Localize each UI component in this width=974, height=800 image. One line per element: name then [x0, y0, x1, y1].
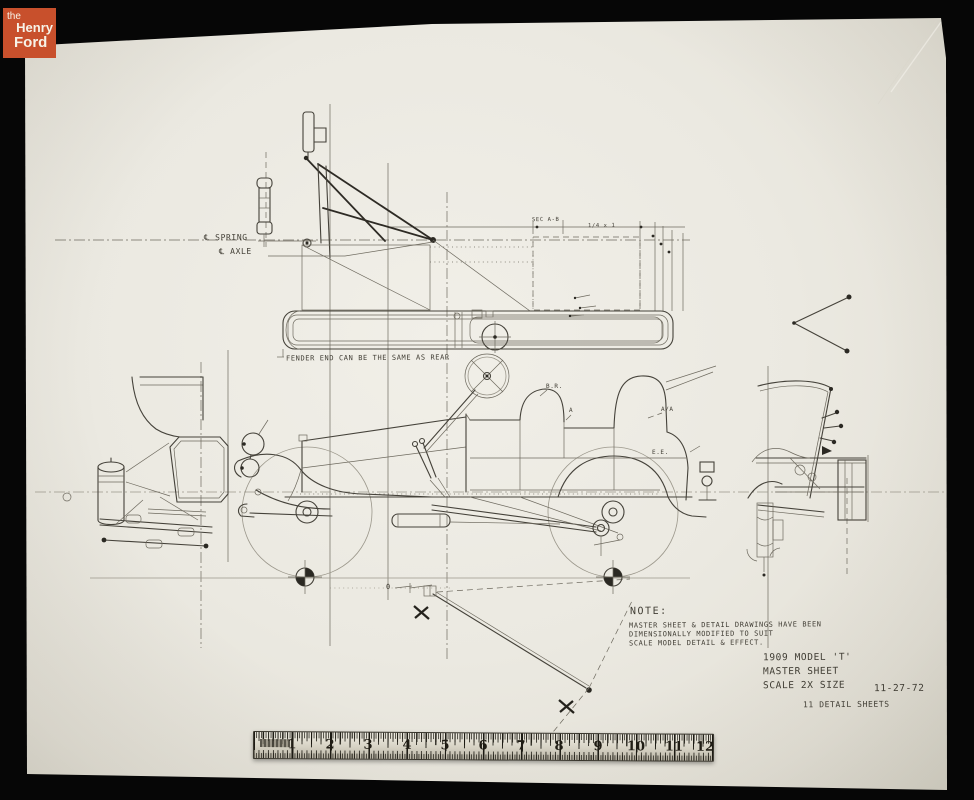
note-line: SCALE MODEL DETAIL & EFFECT. — [629, 639, 764, 648]
datum-zero-label: 0 — [386, 583, 391, 591]
ruler-number: 9 — [593, 739, 602, 754]
ruler-number: 1 — [287, 737, 296, 752]
ruler-number: 2 — [325, 737, 334, 752]
top-bow-chevron — [792, 295, 851, 354]
title-line: MASTER SHEET — [763, 666, 839, 678]
ruler-number: 7 — [516, 739, 525, 754]
dimension-lines — [390, 220, 685, 311]
fender-note: FENDER END CAN BE THE SAME AS REAR — [286, 353, 450, 362]
rear-view — [747, 381, 868, 577]
datum-target-icon — [596, 560, 630, 594]
henry-ford-logo: the Henry Ford — [3, 8, 56, 58]
note-line: DIMENSIONALLY MODIFIED TO SUIT — [629, 629, 773, 638]
centerline-spring-label: ℄ SPRING — [204, 233, 248, 242]
ruler-number: 11 — [665, 740, 683, 755]
title-line: SCALE 2X SIZE — [763, 680, 845, 692]
logo-henry: Henry — [16, 21, 53, 34]
ruler-number: 4 — [402, 738, 411, 753]
ruler-number: 8 — [554, 739, 563, 754]
ruler-number: 3 — [363, 738, 372, 753]
label-aa: A/A — [661, 406, 674, 413]
title-line: 1909 MODEL 'T' — [763, 652, 852, 664]
note-line: MASTER SHEET & DETAIL DRAWINGS HAVE BEEN — [629, 620, 822, 629]
ruler-number: 12 — [696, 740, 714, 755]
datum-target-icon — [288, 560, 322, 594]
label-ee: E.E. — [652, 449, 669, 456]
archive-photo-page: ℄ SPRING ℄ AXLE FENDER END CAN BE THE SA… — [0, 0, 974, 800]
date-label: 11-27-72 — [874, 683, 925, 694]
construction-lines — [35, 104, 945, 662]
plan-view — [257, 112, 673, 353]
photo-crease — [878, 21, 941, 104]
section-note: SEC A-B — [532, 217, 559, 223]
note-heading: NOTE: — [630, 606, 668, 617]
logo-ford: Ford — [14, 35, 47, 50]
ruler-number: 10 — [627, 739, 645, 754]
ruler-maker-stamp — [260, 739, 290, 747]
diagonal-rod-detail — [410, 579, 633, 737]
detail-sheets-label: 11 DETAIL SHEETS — [803, 700, 890, 710]
centerline-axle-label: ℄ AXLE — [219, 247, 252, 256]
leader-lines — [277, 349, 412, 588]
label-br: B.R. — [546, 383, 563, 390]
ruler-number: 6 — [478, 738, 487, 753]
ruler: 1 2 3 4 5 6 7 8 9 10 11 12 — [253, 731, 714, 762]
ruler-number: 5 — [440, 738, 449, 753]
dim-note: 1/4 x 1 — [588, 223, 615, 229]
side-view — [235, 354, 716, 577]
front-view — [63, 377, 268, 548]
label-a: A — [569, 407, 573, 414]
